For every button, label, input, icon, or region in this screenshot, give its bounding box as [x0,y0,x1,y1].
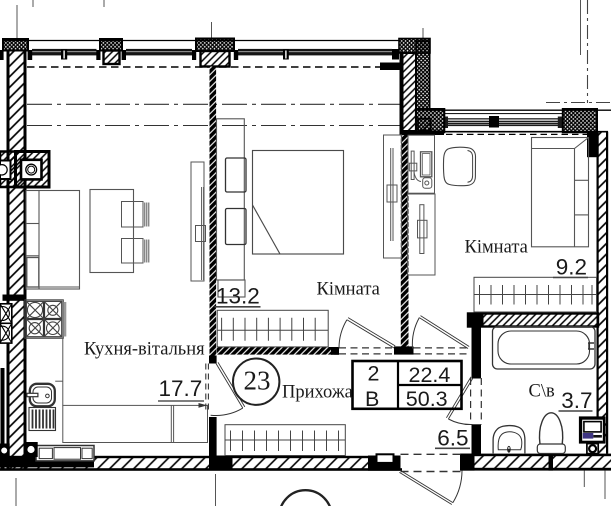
svg-text:Прихожа: Прихожа [282,383,353,403]
svg-text:С\в: С\в [529,381,555,401]
svg-text:В: В [365,387,379,411]
svg-text:2: 2 [368,362,380,386]
svg-text:9.2: 9.2 [556,255,587,280]
svg-text:Кухня-вітальня: Кухня-вітальня [84,340,205,360]
svg-text:Кімната: Кімната [317,280,380,300]
svg-text:Кімната: Кімната [465,238,528,258]
svg-text:17.7: 17.7 [159,376,203,401]
svg-text:6.5: 6.5 [437,426,468,451]
svg-text:3.7: 3.7 [561,388,592,413]
svg-text:50.3: 50.3 [406,387,448,411]
svg-text:13.2: 13.2 [216,284,260,309]
svg-text:23: 23 [244,366,271,396]
svg-text:22.4: 22.4 [409,363,451,387]
